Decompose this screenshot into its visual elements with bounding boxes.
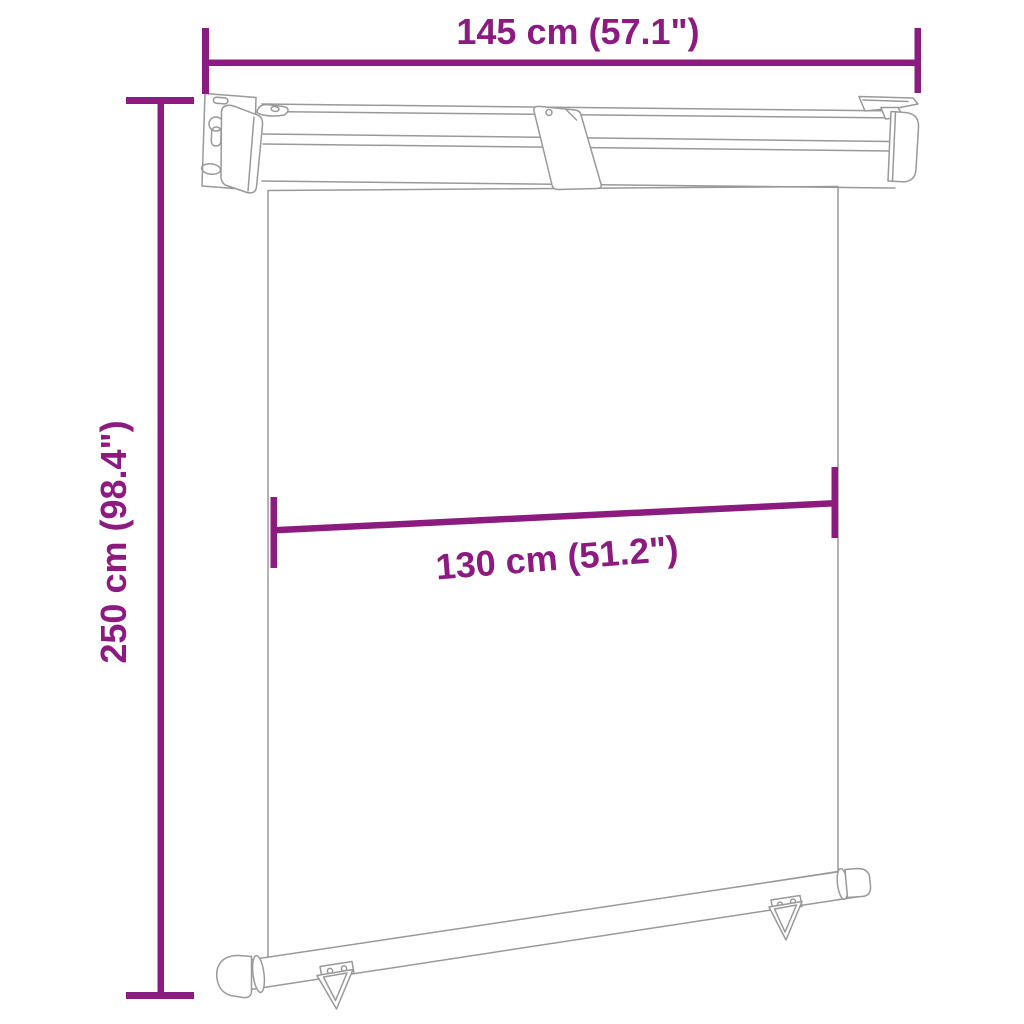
pull-hook-right [769,896,802,941]
bar-right-end-cap [845,869,871,898]
dimension-height-left: 250 cm (98.4") [93,97,194,999]
top-dim-label: 145 cm (57.1") [456,11,699,52]
center-support-strap [534,106,601,189]
top-dim-line [205,60,918,67]
strap-outline [534,106,601,189]
cassette-top-edge [262,104,897,111]
left-end-cap [221,105,288,193]
left-cap-outline [221,105,263,193]
right-end-cap [888,112,919,182]
left-dim-label: 250 cm (98.4") [93,420,134,663]
bar-left-end-cap [217,955,252,997]
pull-hook-left [317,962,354,1010]
left-dim-line [158,100,165,994]
dimension-width-top: 145 cm (57.1") [202,11,921,94]
product-dimension-diagram: 145 cm (57.1") 250 cm (98.4") 130 cm (51… [0,0,1024,1024]
diagram-svg: 145 cm (57.1") 250 cm (98.4") 130 cm (51… [0,0,1024,1024]
